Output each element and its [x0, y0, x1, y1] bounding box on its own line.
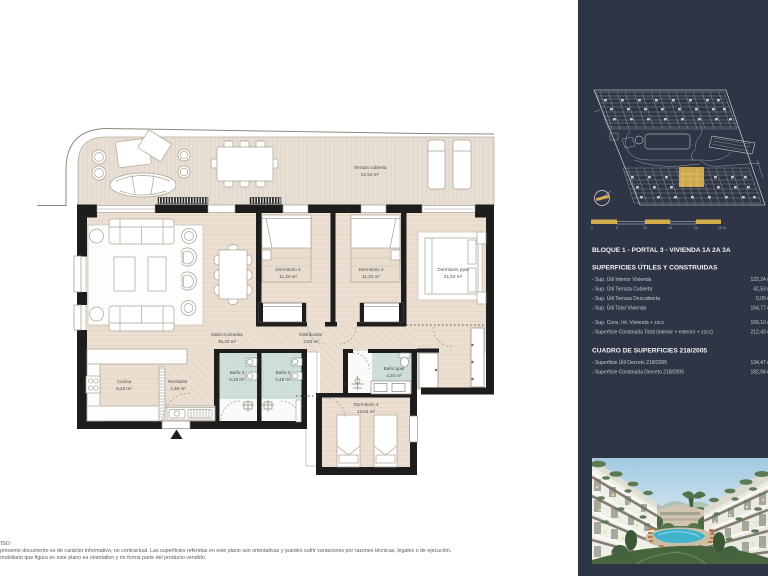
svg-text:0: 0 — [591, 226, 593, 230]
svg-text:6,23 m²: 6,23 m² — [116, 386, 132, 391]
svg-text:42,53 m²: 42,53 m² — [361, 172, 380, 177]
svg-text:122,24 m²: 122,24 m² — [750, 277, 768, 283]
svg-text:2,02 m²: 2,02 m² — [303, 339, 319, 344]
svg-text:4,20 m²: 4,20 m² — [386, 373, 402, 378]
svg-text:BLOQUE 1 - PORTAL 3 - VIVIENDA: BLOQUE 1 - PORTAL 3 - VIVIENDA 1A 2A 3A — [592, 247, 731, 254]
svg-text:182,94 m²: 182,94 m² — [750, 370, 768, 376]
svg-text:5,33 m²: 5,33 m² — [229, 377, 245, 382]
svg-text:- Superficie Útil Decreto 218: - Superficie Útil Decreto 218/2005 — [592, 359, 667, 366]
svg-text:El mobiliario que figura en es: El mobiliario que figura en este plano e… — [0, 555, 206, 561]
svg-text:Dormitorio ppal: Dormitorio ppal — [437, 267, 468, 272]
svg-text:5: 5 — [616, 226, 618, 230]
svg-text:42,53 m²: 42,53 m² — [753, 287, 768, 293]
svg-text:35,33 m²: 35,33 m² — [218, 339, 237, 344]
svg-text:10: 10 — [643, 226, 647, 230]
svg-text:- Sup. Útil Terraza Descubier: - Sup. Útil Terraza Descubierta — [592, 295, 660, 302]
svg-text:4,38 m²: 4,38 m² — [170, 386, 186, 391]
svg-text:25 m: 25 m — [718, 226, 726, 230]
svg-text:Baño 2: Baño 2 — [276, 370, 291, 375]
svg-text:20: 20 — [694, 226, 698, 230]
svg-text:Baño ppal: Baño ppal — [384, 366, 405, 371]
svg-text:- Superficie Construida Total: - Superficie Construida Total (interior … — [592, 330, 713, 336]
svg-text:169,10 m²: 169,10 m² — [750, 320, 768, 326]
svg-text:SUPERFICIES ÚTILES Y CONSTRUID: SUPERFICIES ÚTILES Y CONSTRUIDAS — [592, 263, 718, 272]
svg-text:134,47 m²: 134,47 m² — [750, 360, 768, 366]
svg-text:Baño 3: Baño 3 — [230, 370, 245, 375]
svg-text:- Sup. Útil Total Vivienda: - Sup. Útil Total Vivienda — [592, 305, 647, 312]
svg-text:12,64 m²: 12,64 m² — [357, 409, 376, 414]
svg-text:4,45 m²: 4,45 m² — [275, 377, 291, 382]
svg-text:Recibidor: Recibidor — [168, 379, 188, 384]
svg-text:Cocina: Cocina — [117, 379, 132, 384]
svg-text:- Sup. Útil Terraza Cubierta: - Sup. Útil Terraza Cubierta — [592, 286, 652, 293]
svg-text:AVISO:: AVISO: — [0, 541, 11, 547]
svg-text:Dormitorio 2: Dormitorio 2 — [358, 267, 383, 272]
svg-text:Dormitorio 3: Dormitorio 3 — [275, 267, 300, 272]
svg-text:0,00 m²: 0,00 m² — [756, 296, 768, 302]
svg-text:El presente documento es de ca: El presente documento es de carácter inf… — [0, 548, 451, 554]
svg-text:11,34 m²: 11,34 m² — [362, 274, 380, 279]
svg-text:- Sup. Útil Interior Vivienda: - Sup. Útil Interior Vivienda — [592, 276, 652, 283]
svg-text:Terraza cubierta: Terraza cubierta — [354, 165, 387, 170]
svg-text:11,34 m²: 11,34 m² — [279, 274, 297, 279]
svg-text:- Superficie Construida Decre: - Superficie Construida Decreto 218/2005 — [592, 370, 684, 376]
svg-text:Salón-Comedor: Salón-Comedor — [211, 332, 244, 337]
svg-text:15: 15 — [668, 226, 672, 230]
svg-text:21,53 m²: 21,53 m² — [444, 274, 463, 279]
svg-text:Dormitorio 4: Dormitorio 4 — [353, 402, 378, 407]
svg-text:CUADRO DE SUPERFICIES 218/2005: CUADRO DE SUPERFICIES 218/2005 — [592, 348, 707, 355]
svg-text:212,43 m²: 212,43 m² — [750, 330, 768, 336]
svg-text:164,77 m²: 164,77 m² — [750, 306, 768, 312]
svg-text:Distribuidor: Distribuidor — [299, 332, 323, 337]
svg-text:- Sup. Cons. Int. Vivienda +: - Sup. Cons. Int. Vivienda + zzcc — [592, 320, 665, 326]
